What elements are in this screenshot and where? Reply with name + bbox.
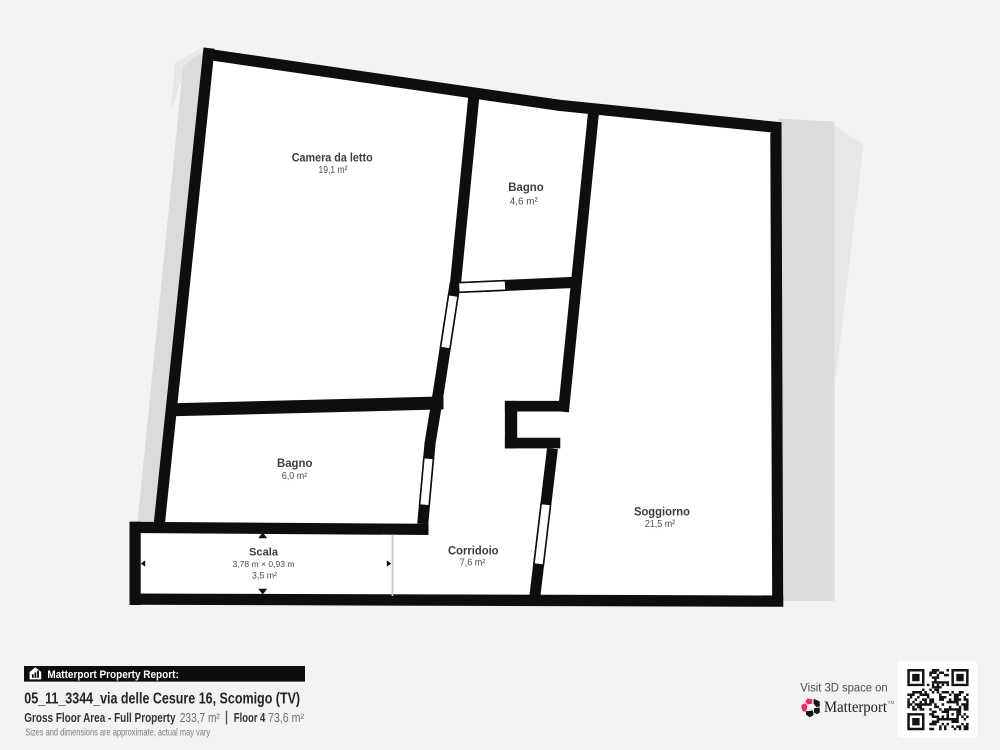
svg-text:7,6 m²: 7,6 m² [460, 557, 486, 568]
svg-text:Matterport Property Report:: Matterport Property Report: [47, 669, 178, 681]
svg-text:Gross Floor Area - Full Proper: Gross Floor Area - Full Property [24, 711, 175, 725]
svg-text:Scala: Scala [249, 547, 279, 559]
svg-text:21,5 m²: 21,5 m² [645, 519, 676, 530]
svg-text:Matterport: Matterport [824, 699, 888, 716]
svg-text:Bagno: Bagno [277, 456, 313, 470]
svg-text:73,6 m²: 73,6 m² [268, 711, 304, 725]
svg-text:Floor 4: Floor 4 [234, 711, 265, 725]
svg-text:4,6 m²: 4,6 m² [510, 197, 539, 208]
svg-text:05_11_3344_via delle Cesure 16: 05_11_3344_via delle Cesure 16, Scomigo … [24, 690, 300, 707]
svg-text:Corridoio: Corridoio [448, 544, 499, 558]
svg-text:Camera da letto: Camera da letto [292, 151, 373, 165]
svg-text:3,5 m²: 3,5 m² [252, 570, 277, 581]
svg-text:TM: TM [888, 700, 895, 705]
svg-text:19,1 m²: 19,1 m² [319, 165, 349, 176]
svg-text:3,78 m × 0,93 m: 3,78 m × 0,93 m [233, 559, 295, 569]
svg-text:233,7 m²: 233,7 m² [180, 711, 220, 725]
svg-text:Soggiorno: Soggiorno [634, 505, 690, 519]
svg-text:Visit 3D space on: Visit 3D space on [800, 681, 887, 695]
svg-text:6,0 m²: 6,0 m² [282, 471, 308, 482]
svg-text:Bagno: Bagno [508, 180, 544, 194]
svg-text:Sizes and dimensions are appro: Sizes and dimensions are approximate, ac… [25, 728, 210, 739]
